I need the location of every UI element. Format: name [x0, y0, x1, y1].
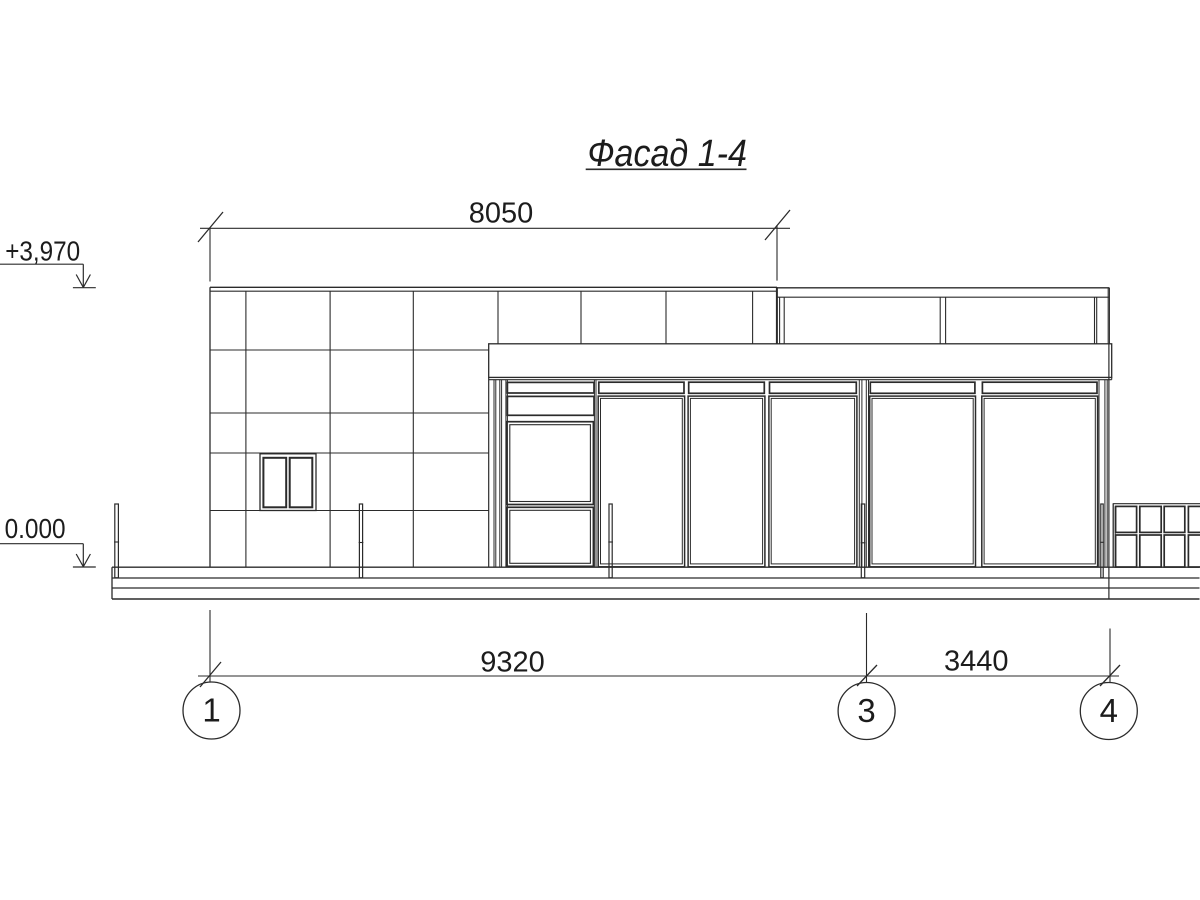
- svg-text:3440: 3440: [944, 646, 1009, 678]
- svg-text:4: 4: [1100, 692, 1118, 729]
- svg-text:3: 3: [857, 692, 875, 729]
- svg-text:1: 1: [202, 691, 220, 728]
- svg-text:+3,970: +3,970: [5, 236, 80, 267]
- svg-text:8050: 8050: [469, 198, 534, 230]
- svg-text:9320: 9320: [480, 647, 545, 679]
- svg-text:0.000: 0.000: [5, 513, 66, 544]
